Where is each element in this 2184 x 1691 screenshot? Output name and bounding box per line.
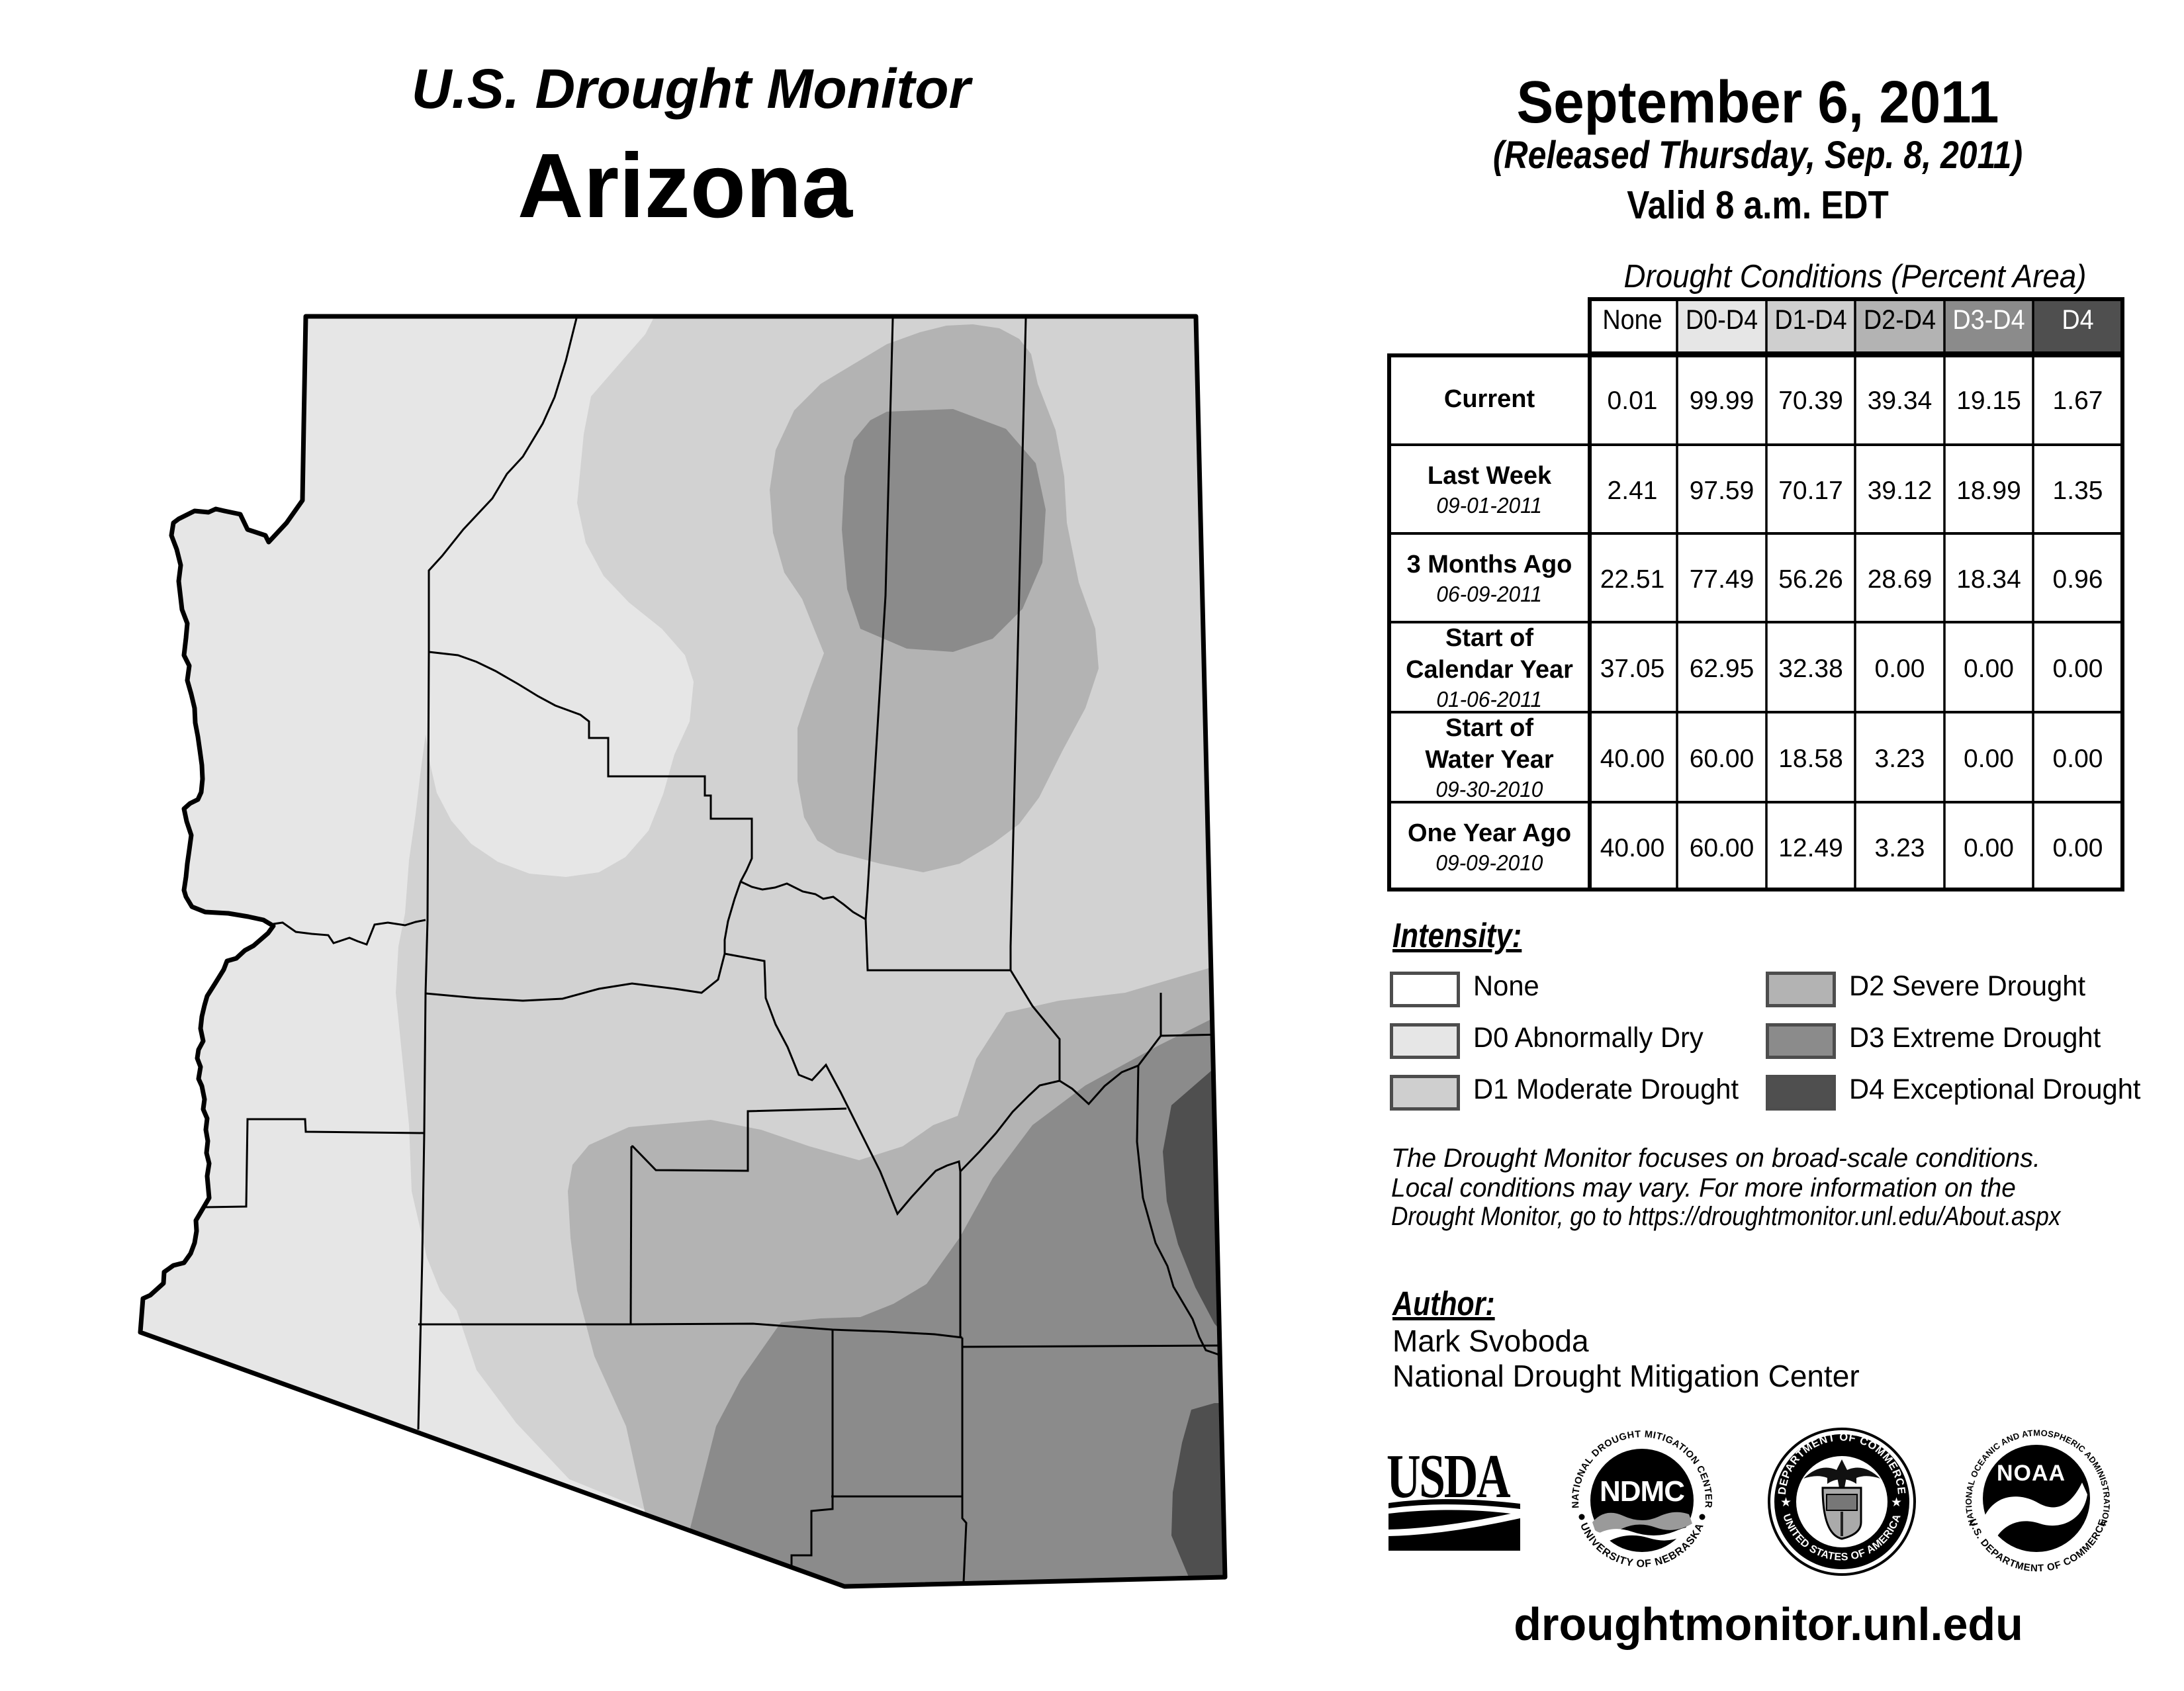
svg-text:★: ★ (1891, 1496, 1902, 1510)
svg-text:NOAA: NOAA (1997, 1461, 2066, 1486)
svg-text:NDMC: NDMC (1600, 1475, 1684, 1508)
svg-text:★: ★ (1780, 1496, 1792, 1510)
